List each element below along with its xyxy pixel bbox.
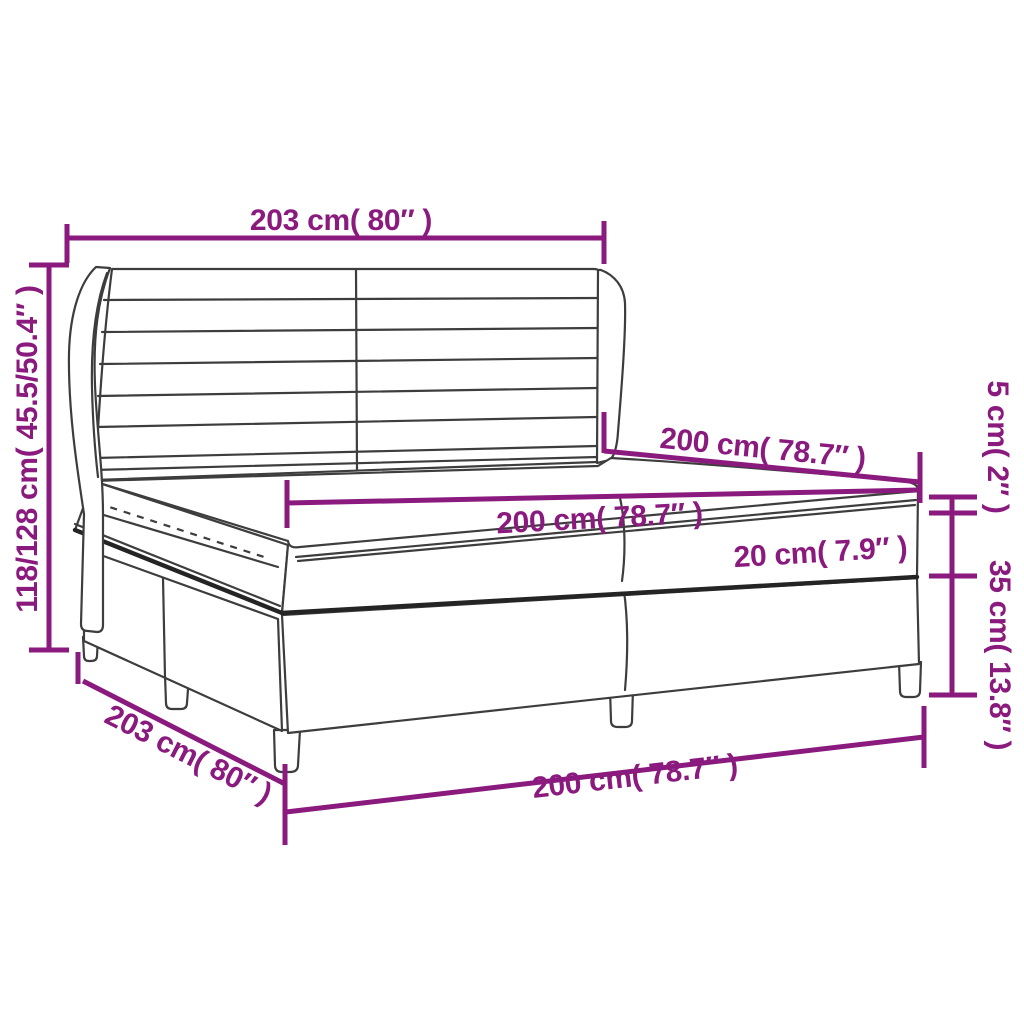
dim-label-overall-height: 118/128 cm( 45.5/50.4″ ): [11, 285, 44, 612]
bed-diagram-canvas: 203 cm( 80″ ) 118/128 cm( 45.5/50.4″ ) 2…: [0, 0, 1024, 1024]
dim-headboard-width: 203 cm( 80″ ): [67, 204, 604, 264]
dim-label-bed-width: 200 cm( 78.7″ ): [530, 748, 739, 805]
dim-overall-height: 118/128 cm( 45.5/50.4″ ): [11, 265, 69, 650]
dim-label-topper-height: 5 cm( 2″ ): [981, 380, 1014, 513]
headboard-center-seam: [356, 269, 357, 470]
dim-label-headboard-width: 203 cm( 80″ ): [250, 204, 432, 237]
headboard: [93, 269, 625, 480]
dim-right-heights: 5 cm( 2″ ) 35 cm( 13.8″ ): [929, 380, 1016, 750]
dimension-diagram: 203 cm( 80″ ) 118/128 cm( 45.5/50.4″ ) 2…: [0, 0, 1024, 1024]
dim-label-base-height: 35 cm( 13.8″ ): [983, 560, 1016, 750]
headboard-right-wing: [597, 270, 625, 463]
bed-illustration: [69, 267, 921, 772]
leg: [899, 662, 921, 697]
